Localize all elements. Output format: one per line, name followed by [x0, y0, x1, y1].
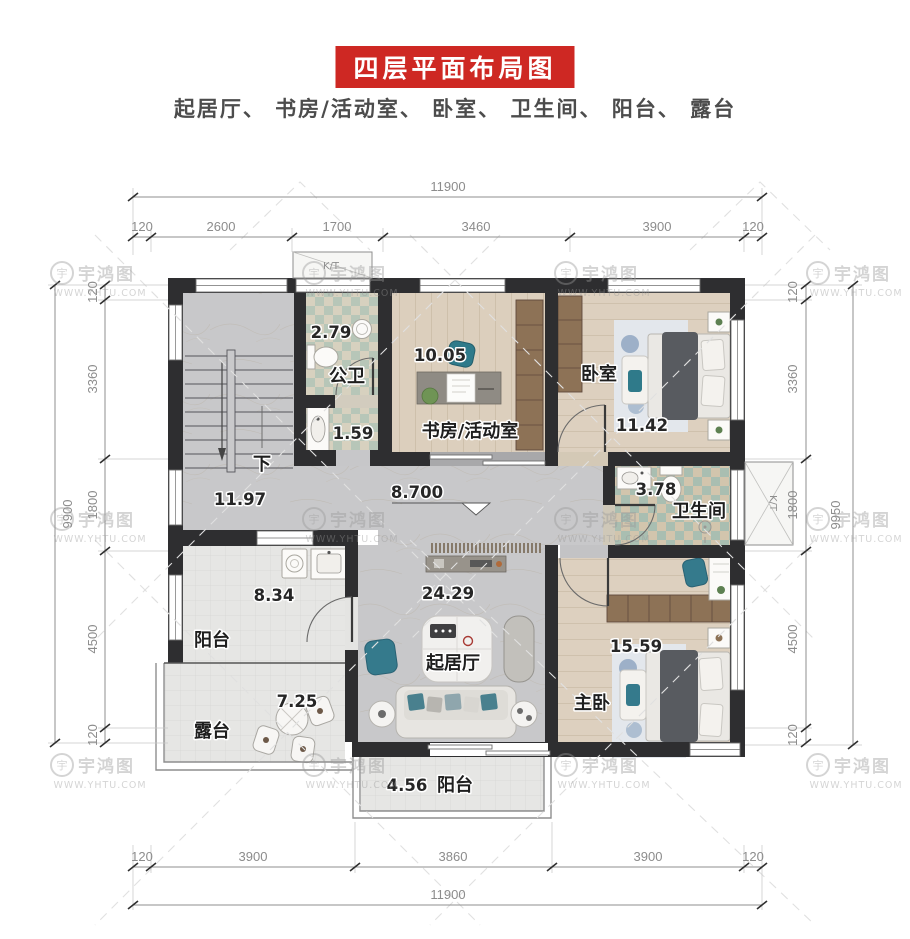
dim-bottom: 120 3900 3860 3900 120 11900 — [128, 849, 767, 909]
window — [196, 279, 287, 292]
dim-label: 3360 — [785, 365, 800, 394]
dim-bottom-total: 11900 — [430, 887, 465, 902]
watermark: 宇宇鸿图WWW.YHTU.COM — [51, 754, 147, 791]
svg-text:WWW.YHTU.COM: WWW.YHTU.COM — [305, 288, 398, 299]
dim-label: 4500 — [785, 625, 800, 654]
svg-text:WWW.YHTU.COM: WWW.YHTU.COM — [53, 288, 146, 299]
dim-label: 120 — [131, 219, 153, 234]
dim-label: 3900 — [239, 849, 268, 864]
watermark: 宇宇鸿图WWW.YHTU.COM — [555, 754, 651, 791]
floor-plan-page: 四层平面布局图 起居厅、 书房/活动室、 卧室、 卫生间、 阳台、 露台 — [0, 0, 910, 939]
svg-text:宇鸿图: 宇鸿图 — [834, 510, 891, 531]
side-table-symbol — [511, 701, 537, 727]
living-label: 起居厅 — [425, 652, 480, 674]
floor-plan-drawing: K/T K/T 11.97 2.79 — [0, 0, 910, 939]
bedroom-bench-symbol — [622, 356, 648, 404]
sliding-door-south-balcony — [428, 743, 550, 756]
washer-symbol — [282, 549, 307, 578]
window — [169, 470, 182, 525]
west-balcony-area: 8.34 — [254, 586, 295, 605]
lounge-chair-symbol — [504, 616, 534, 682]
dim-label: 3460 — [462, 219, 491, 234]
dim-label: 4500 — [85, 625, 100, 654]
dim-top: 11900 120 2600 1700 3460 3900 120 — [128, 179, 767, 241]
south-balcony-label: 阳台 — [437, 774, 473, 796]
svg-text:宇: 宇 — [561, 267, 572, 280]
window — [169, 305, 182, 360]
svg-text:宇鸿图: 宇鸿图 — [834, 756, 891, 777]
window — [420, 279, 505, 292]
dim-top-total: 11900 — [430, 179, 465, 194]
shaft-label: K/T — [767, 495, 778, 512]
dim-label: 120 — [742, 849, 764, 864]
level-label: 8.700 — [391, 483, 443, 502]
svg-text:宇鸿图: 宇鸿图 — [330, 264, 387, 285]
svg-text:宇: 宇 — [813, 267, 824, 280]
svg-text:宇鸿图: 宇鸿图 — [78, 264, 135, 285]
dim-label: 3900 — [634, 849, 663, 864]
svg-text:宇鸿图: 宇鸿图 — [330, 756, 387, 777]
watermark: 宇宇鸿图WWW.YHTU.COM — [807, 262, 903, 299]
bathroom-area: 3.78 — [636, 480, 677, 499]
dim-label: 3900 — [643, 219, 672, 234]
dim-label: 120 — [785, 724, 800, 746]
dim-label: 3360 — [85, 365, 100, 394]
svg-text:宇: 宇 — [309, 267, 320, 280]
stairs-down-label: 下 — [253, 454, 271, 475]
svg-text:宇鸿图: 宇鸿图 — [330, 510, 387, 531]
round-sink-symbol — [353, 320, 372, 339]
dim-label: 120 — [742, 219, 764, 234]
tv-console-symbol — [426, 556, 506, 572]
study-label: 书房/活动室 — [422, 420, 519, 442]
svg-text:WWW.YHTU.COM: WWW.YHTU.COM — [809, 534, 902, 545]
master-area: 15.59 — [610, 637, 662, 656]
study-area: 10.05 — [414, 346, 466, 365]
dim-label: 1800 — [785, 491, 800, 520]
public-bath-area: 2.79 — [311, 323, 352, 342]
svg-text:宇: 宇 — [57, 267, 68, 280]
desk-symbol — [417, 372, 501, 404]
watermark: 宇宇鸿图WWW.YHTU.COM — [807, 754, 903, 791]
dim-label: 120 — [131, 849, 153, 864]
balcony-sink-symbol — [311, 549, 349, 579]
svg-text:WWW.YHTU.COM: WWW.YHTU.COM — [809, 780, 902, 791]
dim-label: 2600 — [207, 219, 236, 234]
window — [731, 470, 744, 540]
master-bed-symbol — [646, 650, 730, 742]
svg-text:宇鸿图: 宇鸿图 — [78, 510, 135, 531]
watermark: 宇宇鸿图WWW.YHTU.COM — [51, 262, 147, 299]
svg-text:WWW.YHTU.COM: WWW.YHTU.COM — [557, 780, 650, 791]
wash-area: 1.59 — [333, 424, 374, 443]
svg-text:WWW.YHTU.COM: WWW.YHTU.COM — [557, 288, 650, 299]
bathroom-label: 卫生间 — [672, 500, 726, 522]
svg-text:宇: 宇 — [57, 759, 68, 772]
master-label: 主卧 — [574, 692, 610, 714]
svg-text:宇鸿图: 宇鸿图 — [834, 264, 891, 285]
svg-text:宇: 宇 — [309, 513, 320, 526]
bookshelf-symbol — [516, 300, 543, 450]
public-bath-label: 公卫 — [329, 366, 365, 387]
svg-text:宇: 宇 — [813, 513, 824, 526]
sofa-symbol — [396, 686, 516, 738]
watermark: 宇宇鸿图WWW.YHTU.COM — [303, 754, 399, 791]
stair-hall-area: 11.97 — [214, 490, 266, 509]
west-balcony-label: 阳台 — [194, 629, 230, 651]
dim-label: 3860 — [439, 849, 468, 864]
svg-text:WWW.YHTU.COM: WWW.YHTU.COM — [305, 780, 398, 791]
svg-text:宇: 宇 — [561, 513, 572, 526]
svg-text:宇鸿图: 宇鸿图 — [78, 756, 135, 777]
terrace-label: 露台 — [194, 720, 230, 742]
window — [731, 320, 744, 420]
svg-text:宇鸿图: 宇鸿图 — [582, 264, 639, 285]
svg-text:WWW.YHTU.COM: WWW.YHTU.COM — [53, 780, 146, 791]
svg-text:宇: 宇 — [813, 759, 824, 772]
bedroom-label: 卧室 — [581, 363, 617, 385]
terrace-area: 7.25 — [277, 692, 318, 711]
bedroom-bed-symbol — [648, 332, 730, 420]
dim-label: 1700 — [323, 219, 352, 234]
svg-text:WWW.YHTU.COM: WWW.YHTU.COM — [557, 534, 650, 545]
svg-text:WWW.YHTU.COM: WWW.YHTU.COM — [809, 288, 902, 299]
bedroom-wardrobe-symbol — [558, 296, 582, 392]
window — [169, 575, 182, 640]
living-area: 24.29 — [422, 584, 474, 603]
accent-chair-symbol — [364, 638, 398, 676]
svg-text:宇鸿图: 宇鸿图 — [582, 756, 639, 777]
svg-text:宇: 宇 — [57, 513, 68, 526]
svg-text:宇: 宇 — [561, 759, 572, 772]
watermark: 宇宇鸿图WWW.YHTU.COM — [807, 508, 903, 545]
bedroom-area: 11.42 — [616, 416, 668, 435]
dim-label: 120 — [785, 281, 800, 303]
svg-text:宇: 宇 — [309, 759, 320, 772]
window — [731, 585, 744, 690]
window — [690, 743, 740, 756]
svg-text:WWW.YHTU.COM: WWW.YHTU.COM — [305, 534, 398, 545]
side-table-symbol — [369, 701, 395, 727]
svg-text:WWW.YHTU.COM: WWW.YHTU.COM — [53, 534, 146, 545]
dim-label: 120 — [85, 724, 100, 746]
master-cabinet-symbol — [709, 556, 733, 600]
vanity-symbol — [307, 407, 329, 451]
svg-text:宇鸿图: 宇鸿图 — [582, 510, 639, 531]
